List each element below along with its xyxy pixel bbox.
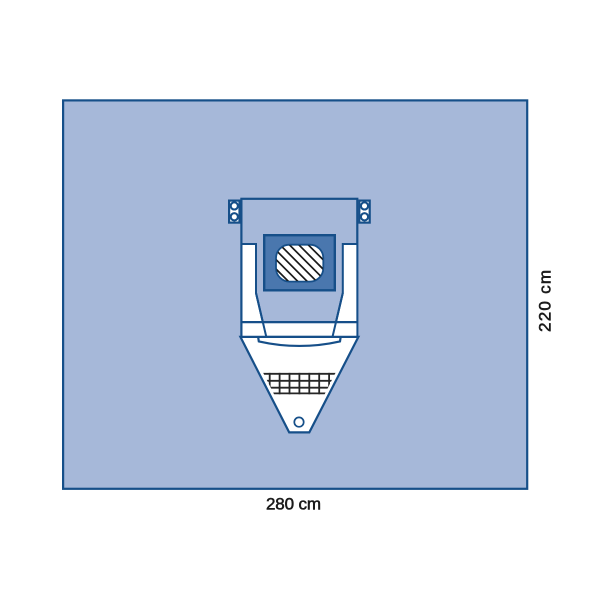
- svg-text:220 cm: 220 cm: [536, 270, 555, 332]
- svg-text:280 cm: 280 cm: [266, 495, 321, 514]
